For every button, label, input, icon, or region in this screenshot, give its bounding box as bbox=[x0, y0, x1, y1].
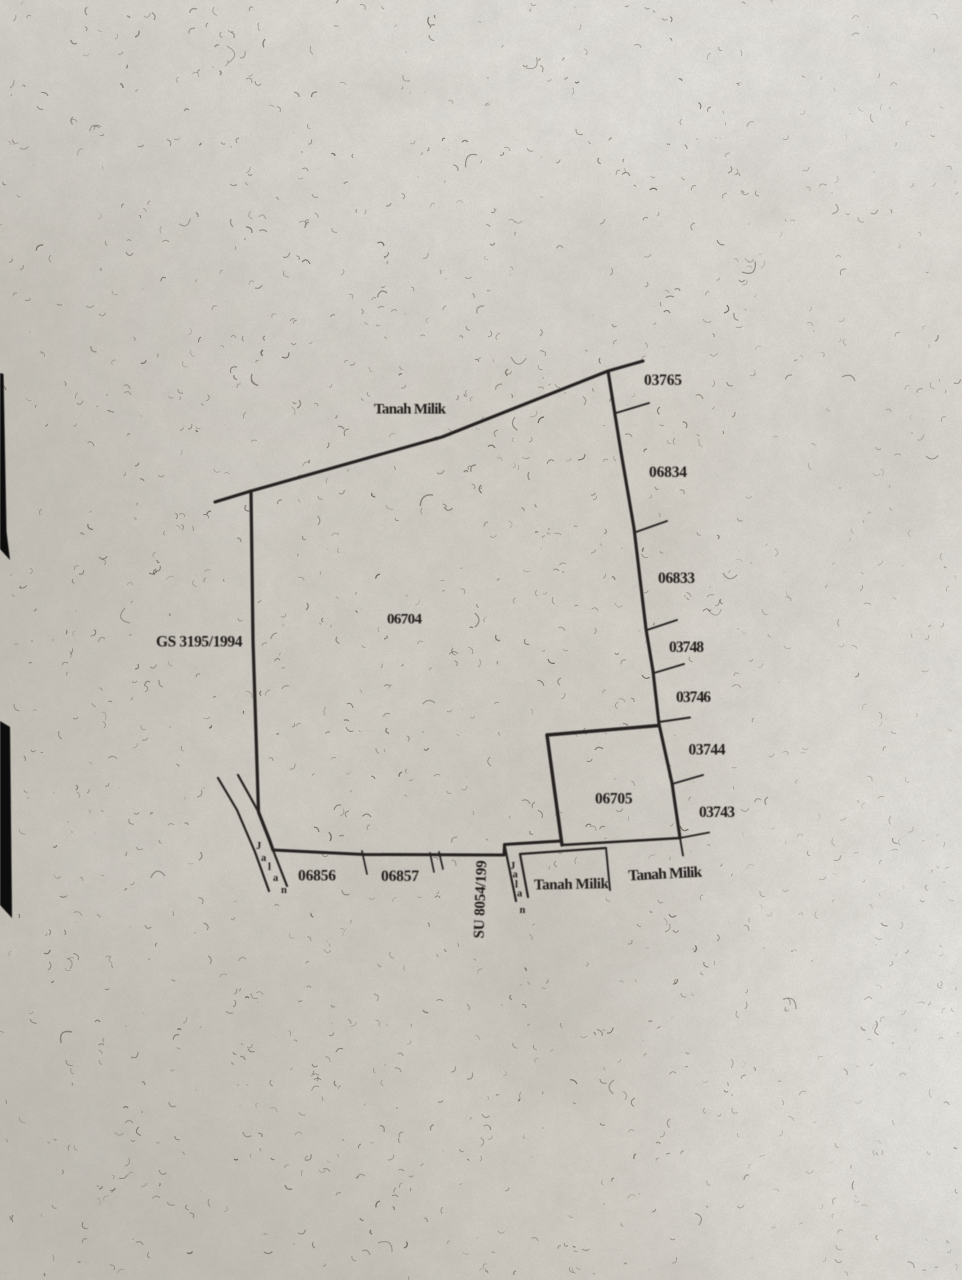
svg-text:a: a bbox=[273, 873, 279, 884]
svg-text:a: a bbox=[517, 889, 523, 900]
svg-text:06857: 06857 bbox=[381, 868, 419, 885]
svg-text:Tanah Milik: Tanah Milik bbox=[374, 402, 447, 418]
svg-text:03746: 03746 bbox=[676, 689, 711, 706]
svg-text:03748: 03748 bbox=[669, 639, 704, 656]
svg-text:GS 3195/1994: GS 3195/1994 bbox=[156, 634, 243, 651]
svg-text:03744: 03744 bbox=[689, 742, 726, 759]
svg-text:03743: 03743 bbox=[699, 804, 735, 821]
svg-text:l: l bbox=[268, 862, 271, 873]
svg-text:03765: 03765 bbox=[644, 372, 682, 389]
svg-text:06834: 06834 bbox=[649, 464, 687, 481]
svg-text:J: J bbox=[256, 841, 261, 852]
svg-text:SU 8054/199: SU 8054/199 bbox=[472, 860, 491, 939]
svg-text:06833: 06833 bbox=[658, 570, 695, 587]
svg-text:06704: 06704 bbox=[387, 612, 423, 628]
svg-text:Tanah Milik: Tanah Milik bbox=[534, 876, 610, 893]
svg-text:n: n bbox=[520, 905, 526, 916]
svg-text:06856: 06856 bbox=[298, 868, 336, 885]
svg-text:n: n bbox=[281, 885, 287, 896]
svg-text:a: a bbox=[261, 853, 267, 864]
svg-text:06705: 06705 bbox=[595, 791, 633, 808]
